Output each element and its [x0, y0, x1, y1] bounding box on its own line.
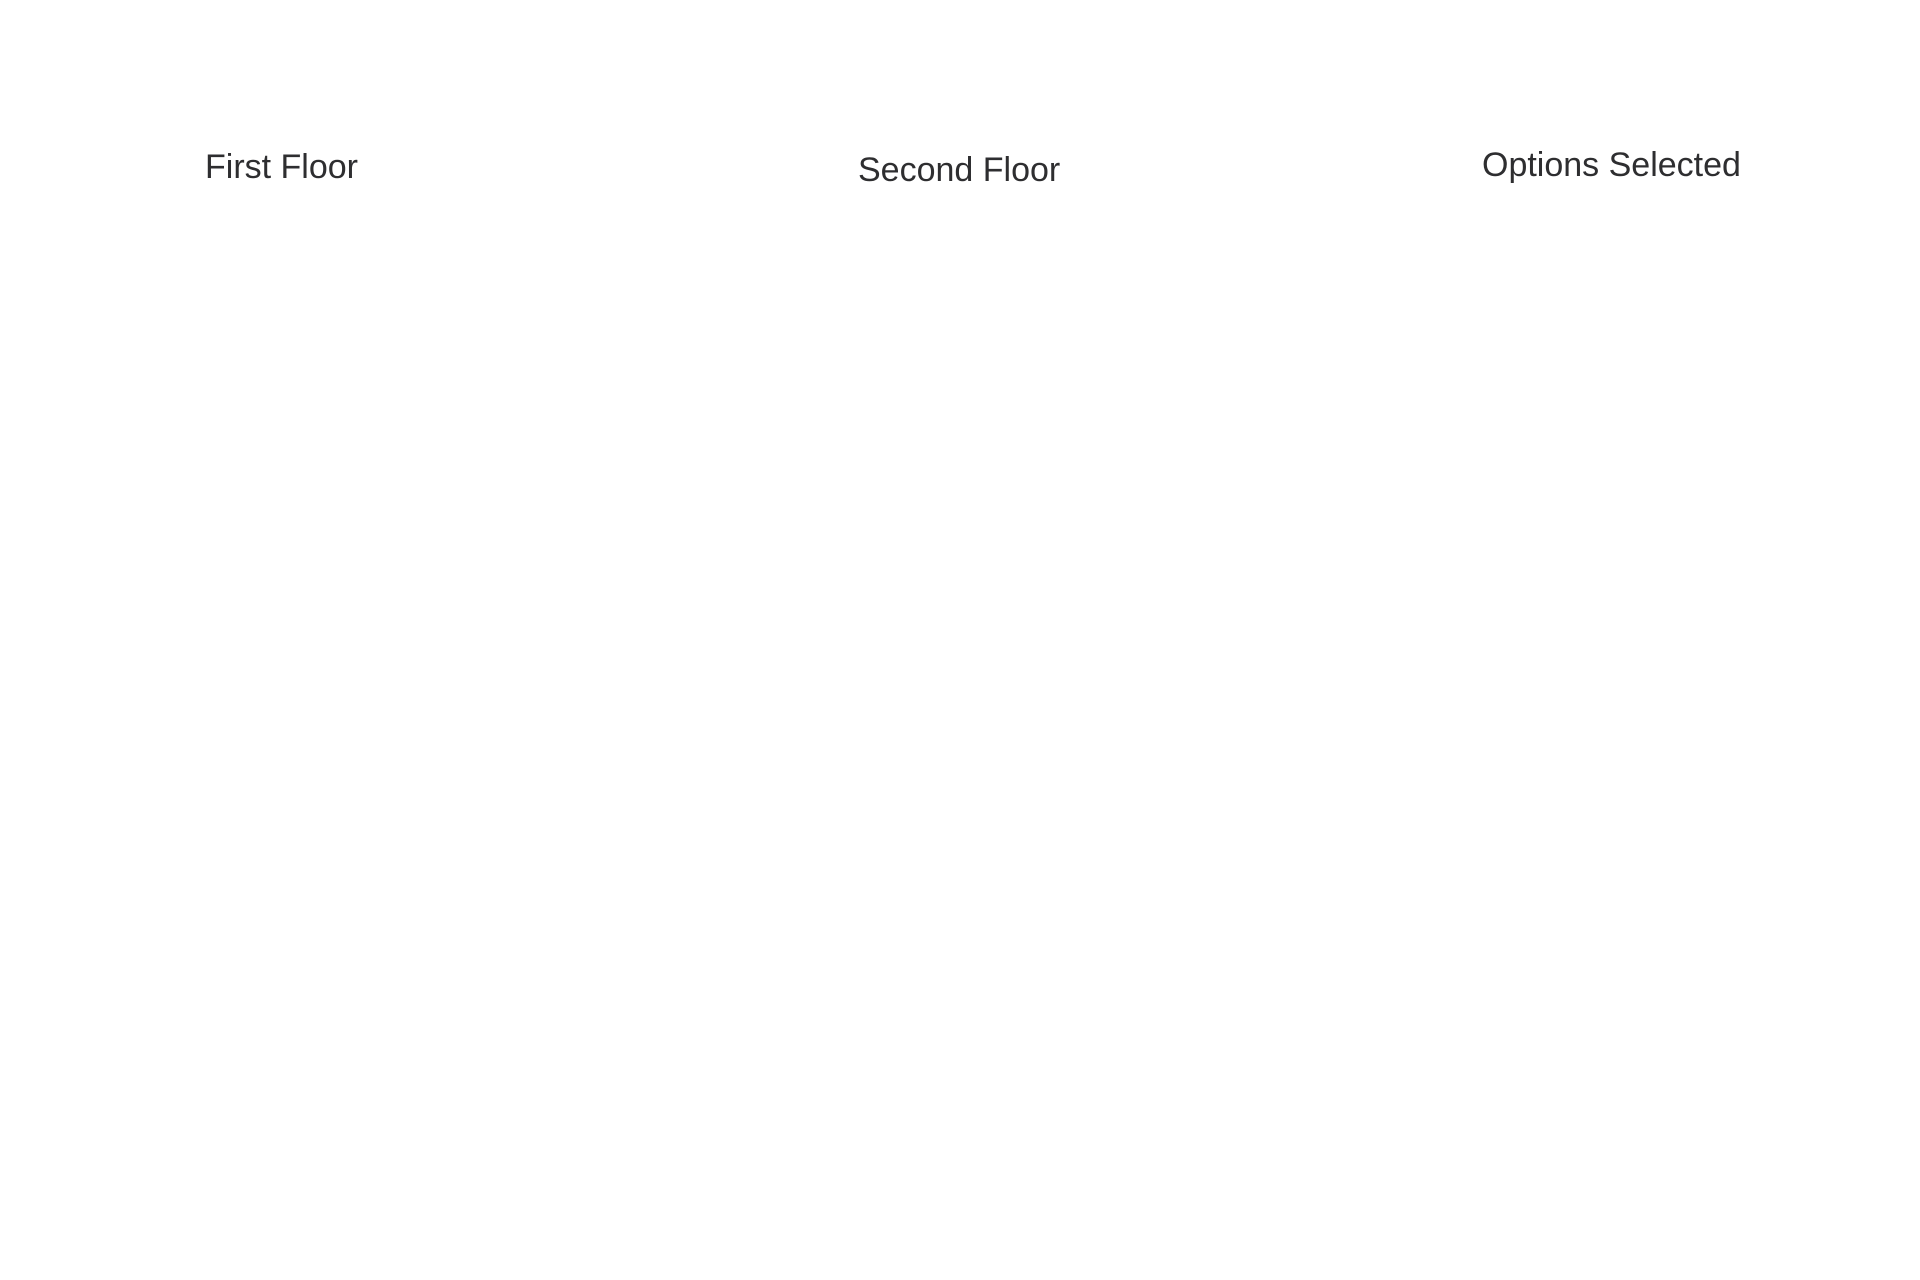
- svg-text:Second Floor: Second Floor: [858, 151, 1060, 189]
- svg-text:Options Selected: Options Selected: [1482, 146, 1741, 184]
- svg-text:First Floor: First Floor: [205, 148, 358, 186]
